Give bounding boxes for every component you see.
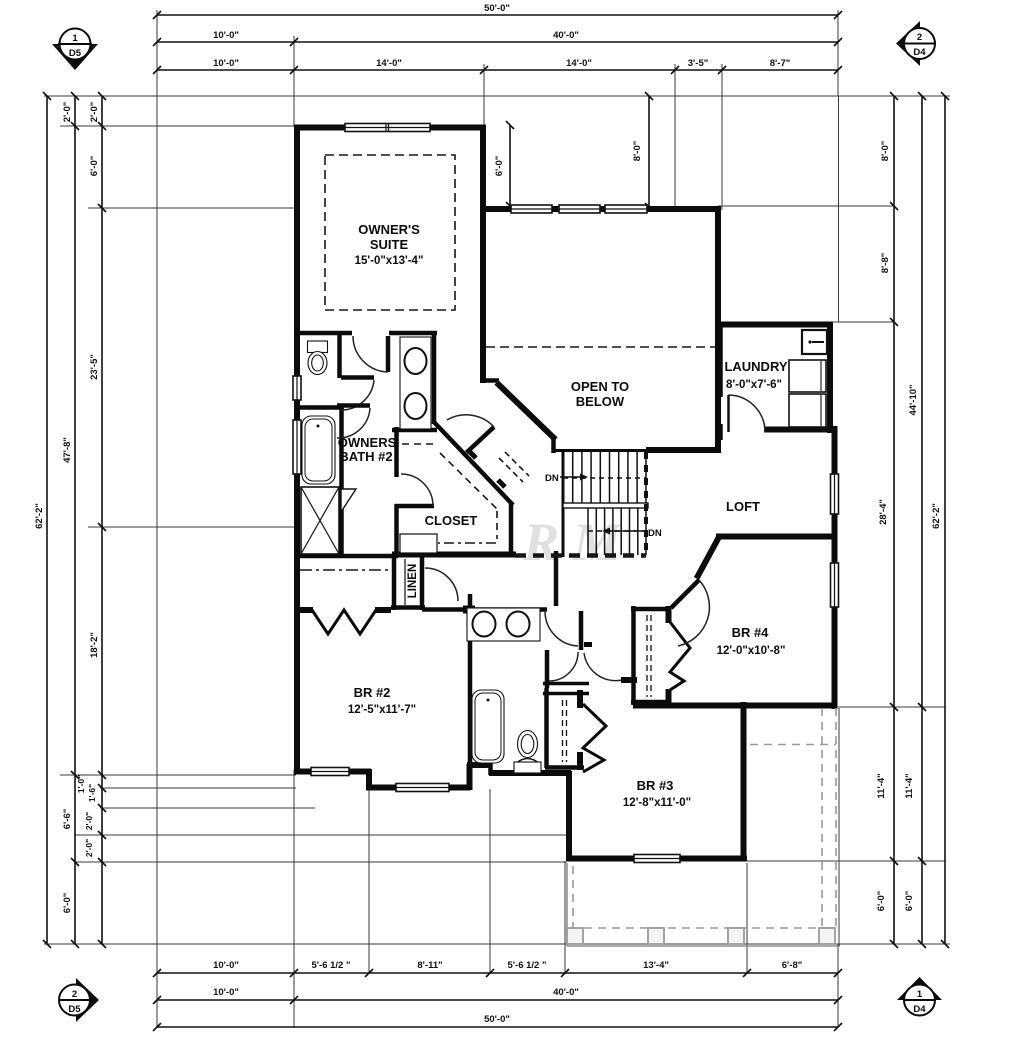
svg-text:50'-0": 50'-0" <box>484 3 510 14</box>
svg-text:2: 2 <box>72 989 77 1000</box>
svg-text:6'-8": 6'-8" <box>782 960 803 971</box>
svg-text:8'-11": 8'-11" <box>417 960 442 971</box>
svg-text:6'-0": 6'-0" <box>62 893 73 914</box>
svg-text:8'-0": 8'-0" <box>632 141 643 162</box>
svg-text:13'-4": 13'-4" <box>643 960 669 971</box>
svg-text:8'-7": 8'-7" <box>770 58 791 69</box>
svg-text:40'-0": 40'-0" <box>553 30 579 41</box>
svg-text:40'-0": 40'-0" <box>553 987 579 998</box>
svg-text:6'-0": 6'-0" <box>904 891 915 912</box>
svg-text:OWNER'S: OWNER'S <box>358 222 420 237</box>
svg-text:12'-5"x11'-7": 12'-5"x11'-7" <box>348 704 416 716</box>
svg-text:6'-0": 6'-0" <box>494 156 505 177</box>
svg-text:23'-5": 23'-5" <box>89 354 100 380</box>
svg-text:3'-5": 3'-5" <box>688 58 709 69</box>
svg-text:D5: D5 <box>68 1004 81 1015</box>
svg-text:50'-0": 50'-0" <box>484 1014 510 1025</box>
svg-text:BR #3: BR #3 <box>637 778 674 793</box>
svg-text:2'-0": 2'-0" <box>89 102 100 123</box>
svg-text:14'-0": 14'-0" <box>376 58 402 69</box>
svg-text:11'-4": 11'-4" <box>904 773 915 798</box>
svg-text:15'-0"x13'-4": 15'-0"x13'-4" <box>355 255 424 267</box>
svg-text:LAUNDRY: LAUNDRY <box>724 359 787 374</box>
svg-text:SUITE: SUITE <box>370 237 409 252</box>
svg-text:10'-0": 10'-0" <box>213 987 239 998</box>
svg-text:8'-0"x7'-6": 8'-0"x7'-6" <box>726 379 782 391</box>
svg-text:6'-0": 6'-0" <box>89 156 100 177</box>
svg-text:14'-0": 14'-0" <box>566 58 592 69</box>
svg-text:44'-10": 44'-10" <box>908 384 919 415</box>
svg-text:62'-2": 62'-2" <box>931 503 942 529</box>
svg-text:28'-4": 28'-4" <box>878 499 889 525</box>
svg-text:LOFT: LOFT <box>726 499 760 514</box>
svg-text:2'-0": 2'-0" <box>84 812 94 830</box>
svg-text:OWNERS: OWNERS <box>338 435 397 450</box>
svg-text:6'-0": 6'-0" <box>876 891 887 912</box>
svg-text:1: 1 <box>72 33 78 44</box>
svg-text:11'-4": 11'-4" <box>876 773 887 798</box>
svg-text:BELOW: BELOW <box>576 394 625 409</box>
svg-text:62'-2": 62'-2" <box>34 503 45 529</box>
svg-text:18'-2": 18'-2" <box>89 632 100 658</box>
svg-text:12'-8"x11'-0": 12'-8"x11'-0" <box>623 797 691 809</box>
svg-text:2'-0": 2'-0" <box>84 839 94 857</box>
svg-text:D4: D4 <box>913 1004 926 1015</box>
svg-text:D5: D5 <box>69 48 82 59</box>
svg-text:R M: R M <box>522 512 623 572</box>
svg-text:DN: DN <box>545 473 559 484</box>
svg-text:LINEN: LINEN <box>407 564 419 599</box>
svg-text:BR #4: BR #4 <box>732 625 770 640</box>
svg-text:8'-0": 8'-0" <box>880 141 891 162</box>
svg-text:5'-6 1/2 ": 5'-6 1/2 " <box>312 960 351 971</box>
svg-text:47'-8": 47'-8" <box>62 437 73 463</box>
svg-text:8'-8": 8'-8" <box>880 253 891 274</box>
svg-text:12'-0"x10'-8": 12'-0"x10'-8" <box>717 645 786 657</box>
svg-text:5'-6 1/2 ": 5'-6 1/2 " <box>508 960 547 971</box>
svg-text:BR #2: BR #2 <box>354 685 391 700</box>
svg-text:10'-0": 10'-0" <box>213 30 239 41</box>
svg-text:2: 2 <box>917 32 922 43</box>
svg-text:BATH #2: BATH #2 <box>339 449 392 464</box>
svg-text:2'-0": 2'-0" <box>62 102 73 123</box>
svg-text:OPEN TO: OPEN TO <box>571 379 629 394</box>
svg-text:6'-6": 6'-6" <box>62 809 73 830</box>
svg-text:1'-0": 1'-0" <box>76 775 86 793</box>
svg-text:D4: D4 <box>913 47 926 58</box>
svg-text:10'-0": 10'-0" <box>213 960 239 971</box>
svg-text:DN: DN <box>648 528 662 539</box>
svg-text:10'-0": 10'-0" <box>213 58 239 69</box>
svg-text:CLOSET: CLOSET <box>425 513 478 528</box>
svg-text:1: 1 <box>917 989 923 1000</box>
svg-text:1'-6": 1'-6" <box>87 784 97 802</box>
